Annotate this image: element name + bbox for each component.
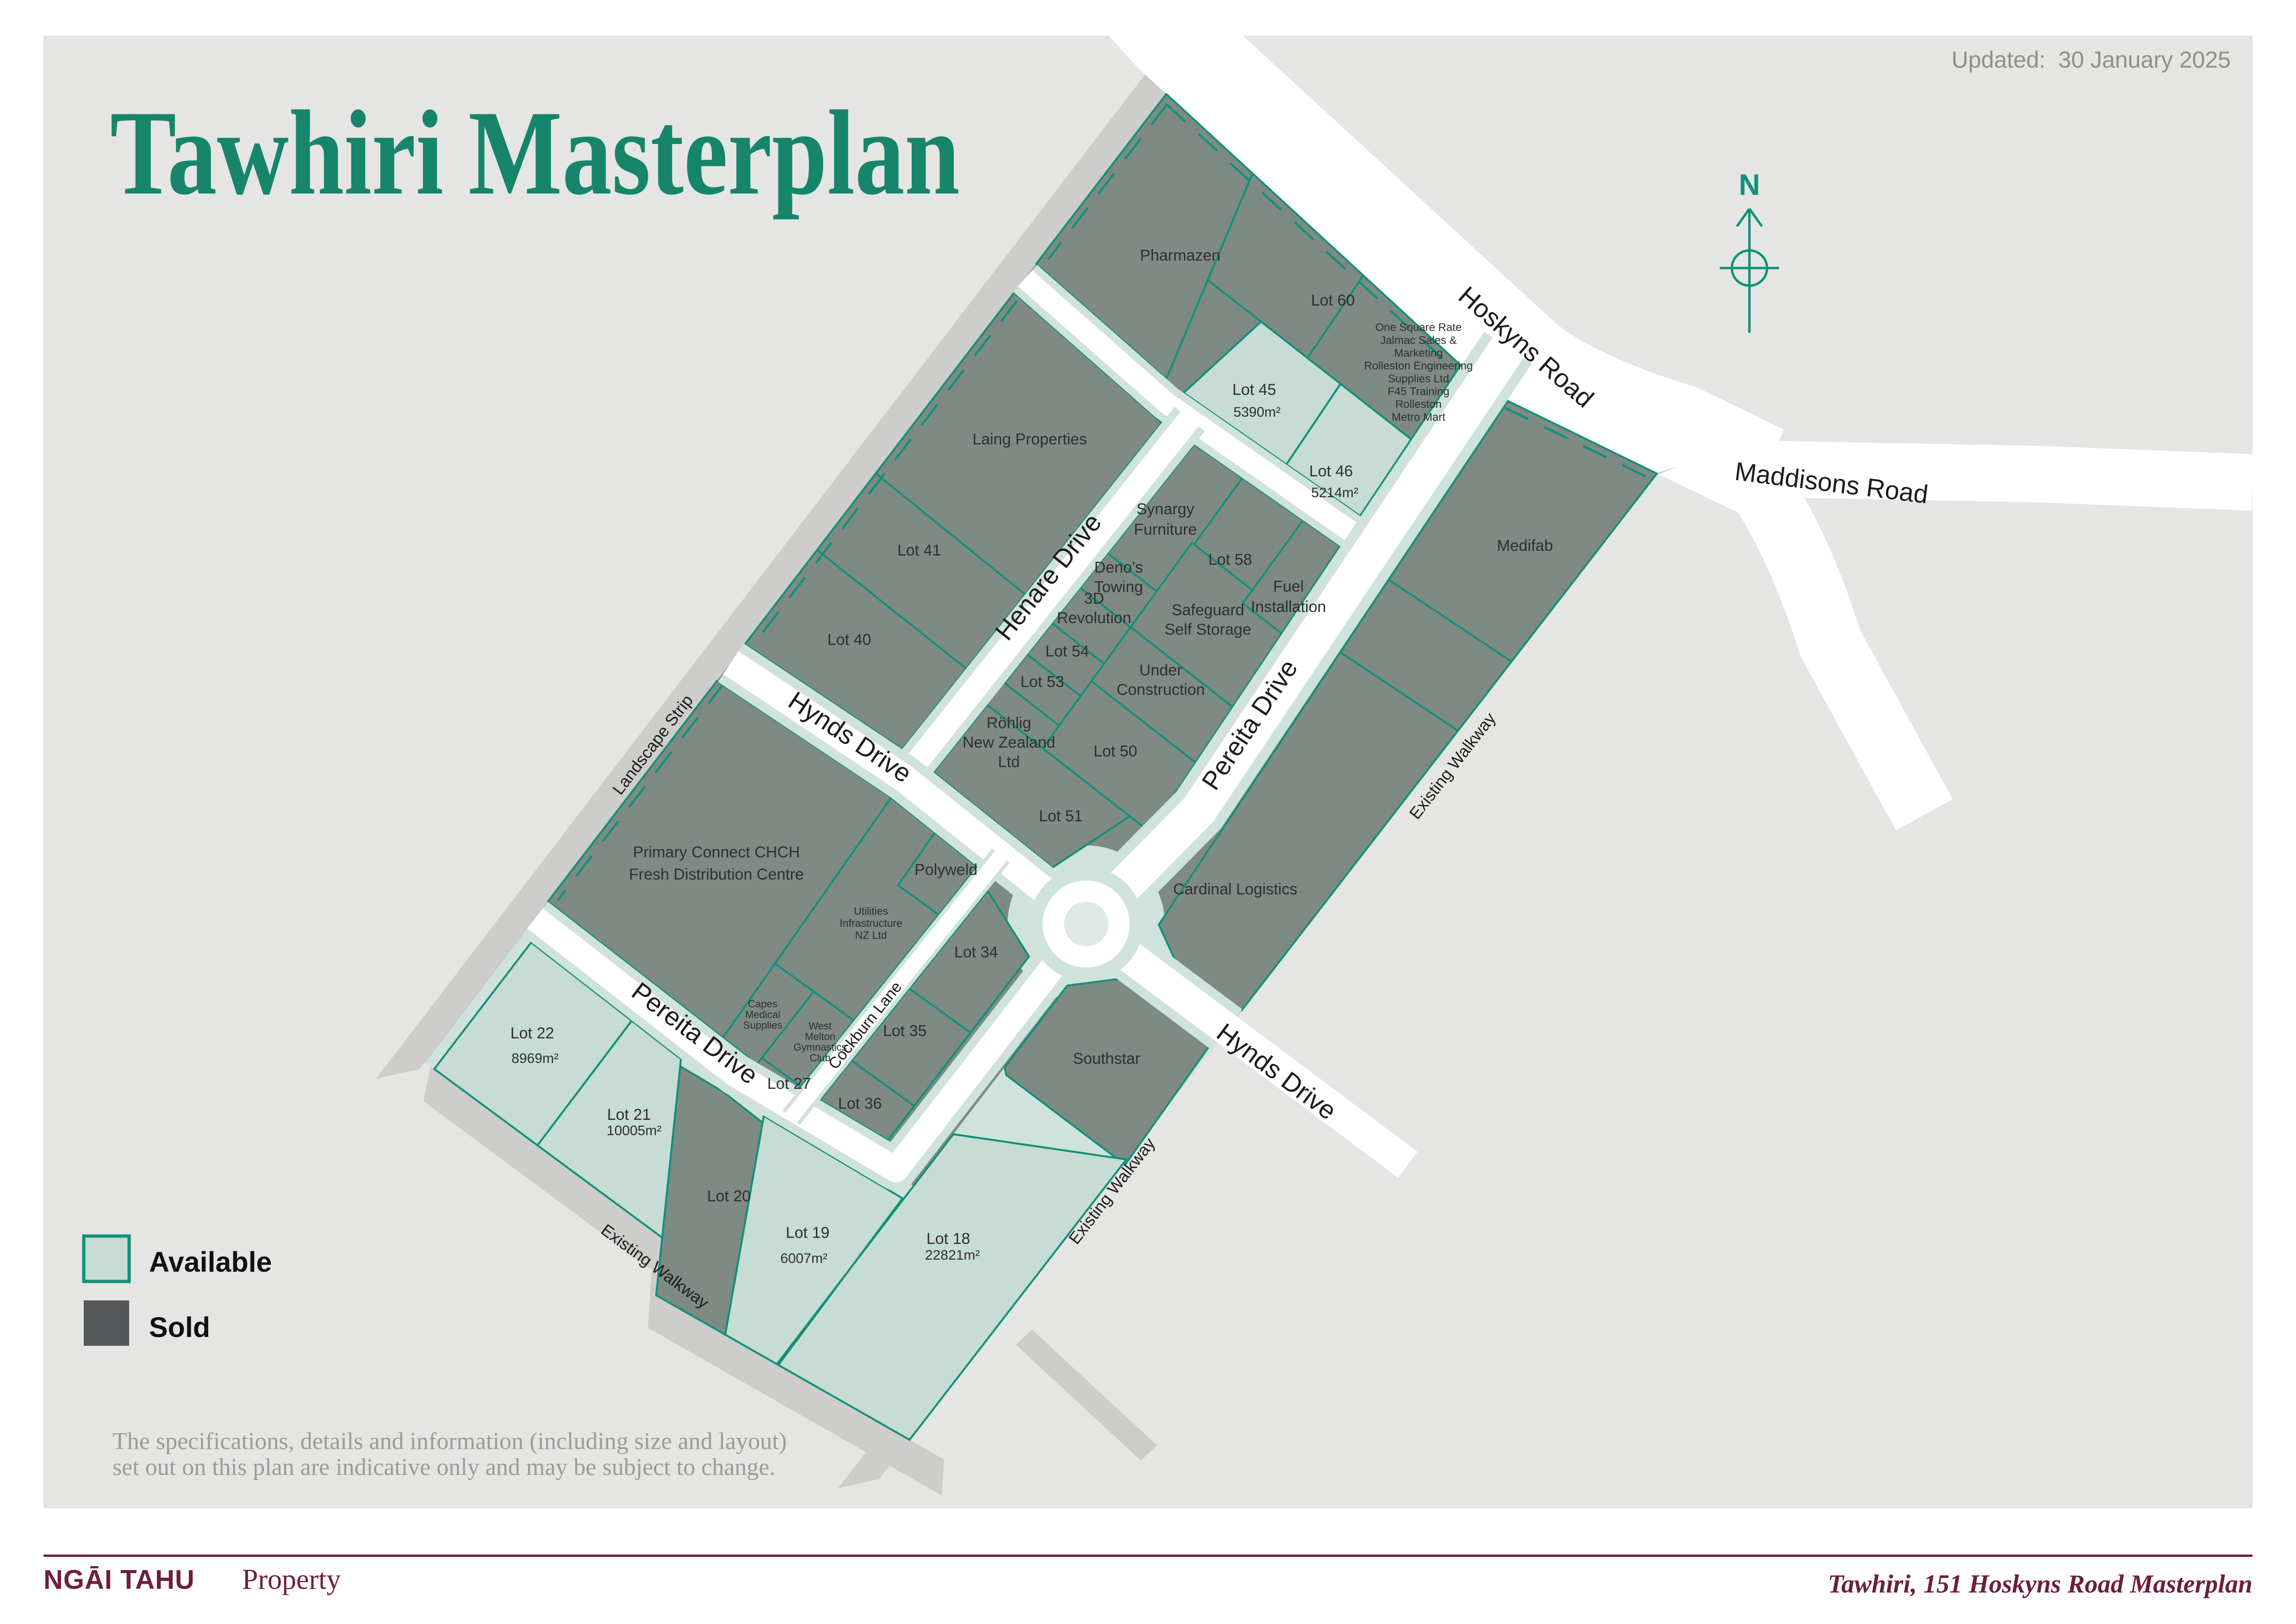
svg-text:22821m²: 22821m² <box>925 1248 980 1263</box>
svg-text:8969m²: 8969m² <box>511 1051 559 1066</box>
svg-text:Medifab: Medifab <box>1497 537 1553 555</box>
svg-text:Lot 60: Lot 60 <box>1311 292 1355 309</box>
svg-text:Lot 27: Lot 27 <box>767 1075 811 1093</box>
svg-text:Tawhiri Masterplan: Tawhiri Masterplan <box>110 86 960 220</box>
svg-text:Lot 46: Lot 46 <box>1309 462 1353 480</box>
svg-text:Lot 35: Lot 35 <box>883 1022 927 1040</box>
svg-text:Available: Available <box>149 1246 272 1278</box>
svg-text:Sold: Sold <box>149 1312 210 1343</box>
svg-text:Lot 41: Lot 41 <box>897 542 941 559</box>
svg-text:Lot 50: Lot 50 <box>1094 743 1138 760</box>
svg-text:Lot 34: Lot 34 <box>954 943 998 961</box>
svg-text:Southstar: Southstar <box>1073 1050 1140 1068</box>
svg-text:Laing Properties: Laing Properties <box>972 431 1087 448</box>
svg-text:Pharmazen: Pharmazen <box>1140 247 1220 264</box>
svg-text:Lot 36: Lot 36 <box>838 1095 882 1112</box>
svg-text:Cardinal Logistics: Cardinal Logistics <box>1173 881 1297 898</box>
svg-text:Lot 20: Lot 20 <box>707 1187 751 1205</box>
svg-text:Lot 40: Lot 40 <box>828 631 871 649</box>
svg-text:set out on this plan are indic: set out on this plan are indicative only… <box>112 1454 776 1480</box>
svg-text:N: N <box>1739 168 1760 201</box>
svg-text:Lot 22: Lot 22 <box>510 1024 554 1042</box>
svg-text:Tawhiri, 151 Hoskyns Road Mast: Tawhiri, 151 Hoskyns Road Masterplan <box>1828 1570 2252 1599</box>
svg-text:Polyweld: Polyweld <box>915 861 977 879</box>
svg-text:5390m²: 5390m² <box>1233 405 1281 420</box>
svg-text:Lot 58: Lot 58 <box>1208 551 1252 568</box>
svg-text:Property: Property <box>242 1564 341 1595</box>
svg-text:CapesMedicalSupplies: CapesMedicalSupplies <box>743 998 782 1031</box>
svg-text:Lot 53: Lot 53 <box>1020 673 1064 691</box>
svg-text:Lot 54: Lot 54 <box>1045 643 1089 660</box>
svg-text:Lot 45: Lot 45 <box>1232 381 1276 399</box>
svg-text:Lot 51: Lot 51 <box>1039 807 1083 825</box>
svg-text:5214m²: 5214m² <box>1311 485 1358 500</box>
svg-text:Lot 19: Lot 19 <box>786 1224 830 1242</box>
svg-text:Lot 21: Lot 21 <box>607 1106 651 1124</box>
svg-text:6007m²: 6007m² <box>780 1251 828 1266</box>
svg-text:NGĀI TAHU: NGĀI TAHU <box>44 1565 203 1595</box>
svg-text:10005m²: 10005m² <box>607 1123 661 1138</box>
svg-text:Lot 18: Lot 18 <box>927 1230 971 1248</box>
svg-text:Updated: 30 January 2025: Updated: 30 January 2025 <box>1952 47 2231 73</box>
svg-text:The specifications, details an: The specifications, details and informat… <box>112 1428 787 1455</box>
